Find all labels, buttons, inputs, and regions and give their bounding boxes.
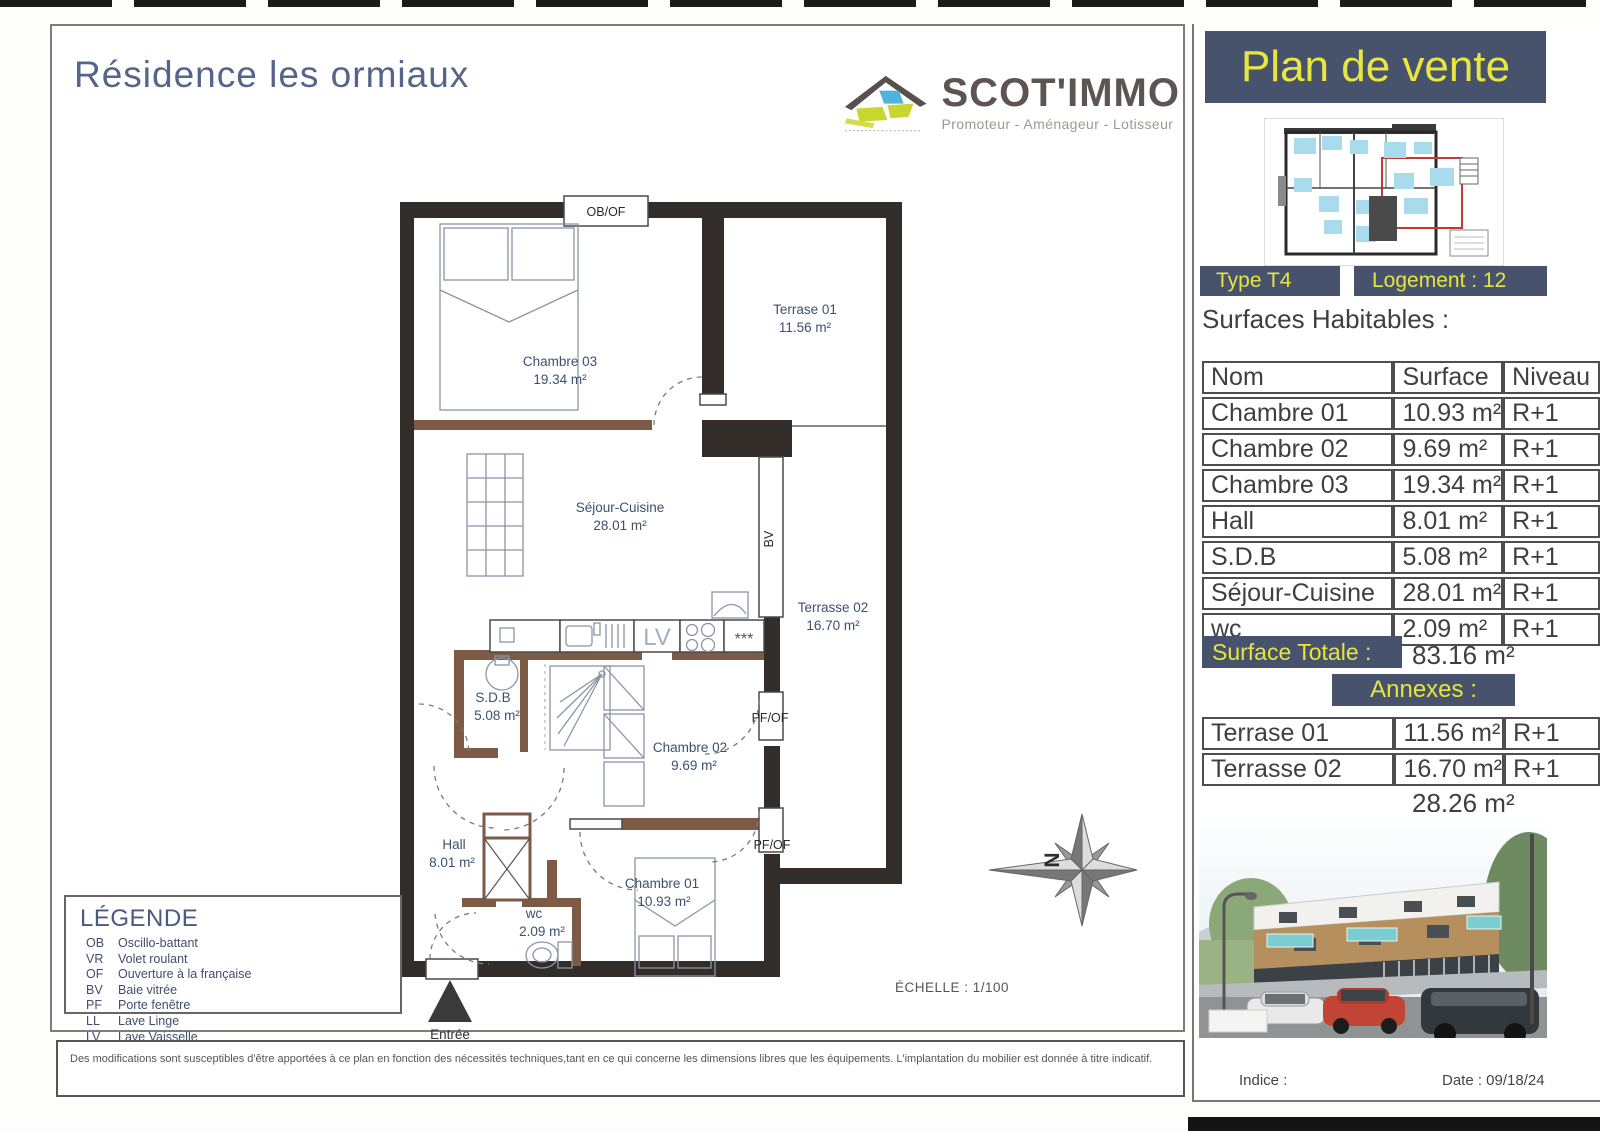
hall-closet [484,814,530,900]
plan-frame: Résidence les ormiaux SCOT'IMMO Promoteu… [50,24,1185,1032]
sidebar: Plan de vente [1192,24,1600,1102]
legend-item: PFPorte fenêtre [80,998,400,1014]
surfaces-table: Nom Surface Niveau Chambre 0110.93 m²R+1… [1202,358,1600,649]
type-badge: Type T4 [1200,266,1340,296]
table-row: Chambre 0110.93 m²R+1 [1202,397,1600,430]
kitchen-counter: LV *** [490,592,764,652]
table-header-row: Nom Surface Niveau [1202,361,1600,394]
table-row: S.D.B5.08 m²R+1 [1202,541,1600,574]
lv-label: LV [643,624,671,651]
svg-text:19.34 m²: 19.34 m² [533,372,587,387]
kitchen-sink [560,620,634,652]
legend-item: BVBaie vitrée [80,983,400,999]
entrance-marker: Entrée [428,980,472,1042]
door-sill [700,394,726,405]
obof-label: OB/OF [587,205,626,219]
svg-text:8.01 m²: 8.01 m² [429,855,475,870]
scale-label: ÉCHELLE : 1/100 [895,980,1009,995]
svg-text:11.56 m²: 11.56 m² [779,320,832,335]
door-ch01 [570,819,622,829]
bv-label: BV [762,530,776,547]
disclaimer-note: Des modifications sont susceptibles d'êt… [56,1040,1185,1097]
table-row: Chambre 0319.34 m²R+1 [1202,469,1600,502]
windows: OB/OF BV PF/OF PF/OF [426,196,791,979]
scotimmo-logo: SCOT'IMMO Promoteur - Aménageur - Lotiss… [840,62,1180,142]
exterior-walls [400,202,902,977]
date-label: Date : 09/18/24 [1442,1072,1545,1089]
label-wc: wc [525,906,543,921]
label-terrase01: Terrase 01 [773,302,837,317]
label-sejour: Séjour-Cuisine [576,500,665,515]
banner-plan-de-vente: Plan de vente [1205,31,1546,103]
utility-pole [1530,834,1534,1024]
building-photo [1199,812,1547,1038]
svg-text:28.01 m²: 28.01 m² [593,518,647,533]
table-row: Terrase 01 11.56 m² R+1 [1202,717,1600,750]
freezer-stars: *** [735,631,754,648]
legend-item: OFOuverture à la française [80,967,400,983]
annexes-table: Terrase 01 11.56 m² R+1 Terrasse 0216.70… [1202,714,1600,789]
table-row: Hall8.01 m²R+1 [1202,505,1600,538]
table-row: Terrasse 0216.70 m²R+1 [1202,753,1600,786]
legend-item: VRVolet roulant [80,952,400,968]
table-row: Chambre 029.69 m²R+1 [1202,433,1600,466]
indice-label: Indice : [1239,1072,1287,1089]
plan-de-vente-sheet: Résidence les ormiaux SCOT'IMMO Promoteu… [0,0,1600,1131]
legend-title: LÉGENDE [80,905,400,933]
door-swings [419,377,759,964]
entrance-opening [426,959,478,979]
floorplan-drawing: OB/OF BV PF/OF PF/OF [387,192,932,1052]
washbasin [486,658,518,690]
surface-totale-badge: Surface Totale : [1202,636,1402,668]
page-title: Résidence les ormiaux [74,54,469,96]
svg-text:16.70 m²: 16.70 m² [806,618,860,633]
table-row: Séjour-Cuisine28.01 m²R+1 [1202,577,1600,610]
label-sdb: S.D.B [475,690,510,705]
logo-tagline: Promoteur - Aménageur - Lotisseur [942,116,1181,132]
label-terrasse02: Terrasse 02 [798,600,869,615]
legend-item: OBOscillo-battant [80,936,400,952]
pfof-label-2: PF/OF [754,838,791,852]
scan-artifact-top [0,0,1600,7]
annexes-badge: Annexes : [1332,674,1515,706]
label-chambre01: Chambre 01 [625,876,699,891]
logo-name: SCOT'IMMO [942,73,1181,113]
label-chambre02: Chambre 02 [653,740,727,755]
svg-text:5.08 m²: 5.08 m² [474,708,520,723]
scotimmo-roof-icon [840,64,932,140]
scan-artifact-bottom [1188,1117,1600,1131]
compass-rose: N [987,806,1152,941]
svg-text:10.93 m²: 10.93 m² [637,894,691,909]
svg-text:2.09 m²: 2.09 m² [519,924,565,939]
shower [550,666,610,750]
north-letter: N [1041,852,1064,867]
shelf-sejour [467,454,523,576]
building-overview-plan [1264,118,1504,266]
logement-badge: Logement : 12 [1354,266,1547,296]
svg-text:9.69 m²: 9.69 m² [671,758,717,773]
surfaces-title: Surfaces Habitables : [1202,304,1449,335]
photo-watermark [1209,1010,1267,1032]
label-chambre03: Chambre 03 [523,354,597,369]
label-hall: Hall [442,837,465,852]
legend-box: LÉGENDE OBOscillo-battant VRVolet roulan… [64,895,402,1014]
surface-totale-value: 83.16 m² [1412,640,1515,671]
dark-suv [1421,988,1539,1038]
legend-item: LLLave Linge [80,1014,400,1030]
